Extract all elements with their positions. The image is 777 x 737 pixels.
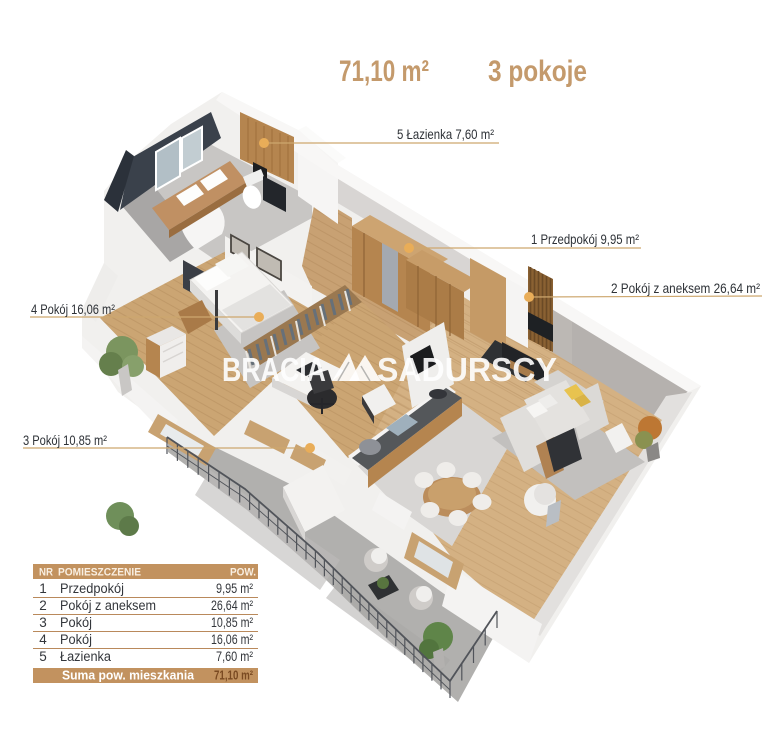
svg-text:5 Łazienka 7,60 m²: 5 Łazienka 7,60 m² bbox=[397, 126, 494, 142]
svg-text:Przedpokój: Przedpokój bbox=[60, 581, 124, 596]
svg-text:9,95 m²: 9,95 m² bbox=[216, 581, 253, 596]
svg-text:3: 3 bbox=[39, 615, 47, 630]
svg-text:2: 2 bbox=[39, 598, 47, 613]
svg-text:71,10 m²: 71,10 m² bbox=[214, 668, 253, 683]
svg-text:16,06 m²: 16,06 m² bbox=[211, 632, 253, 647]
svg-text:Pokój z aneksem: Pokój z aneksem bbox=[60, 598, 156, 613]
svg-text:Łazienka: Łazienka bbox=[60, 649, 111, 664]
svg-text:SADURSCY: SADURSCY bbox=[377, 351, 557, 388]
svg-text:3 Pokój 10,85 m²: 3 Pokój 10,85 m² bbox=[23, 432, 107, 448]
svg-text:5: 5 bbox=[39, 649, 47, 664]
svg-text:BRACIA: BRACIA bbox=[222, 351, 326, 388]
svg-text:POW.: POW. bbox=[230, 567, 256, 579]
svg-text:4 Pokój 16,06 m²: 4 Pokój 16,06 m² bbox=[31, 301, 115, 317]
svg-text:2 Pokój z aneksem 26,64 m²: 2 Pokój z aneksem 26,64 m² bbox=[611, 280, 760, 296]
svg-text:POMIESZCZENIE: POMIESZCZENIE bbox=[58, 567, 141, 579]
svg-text:Pokój: Pokój bbox=[60, 632, 92, 647]
svg-text:Pokój: Pokój bbox=[60, 615, 92, 630]
svg-text:1 Przedpokój 9,95 m²: 1 Przedpokój 9,95 m² bbox=[531, 231, 639, 247]
svg-text:1: 1 bbox=[39, 581, 47, 596]
svg-text:Suma pow. mieszkania: Suma pow. mieszkania bbox=[62, 668, 195, 683]
svg-text:NR: NR bbox=[39, 567, 53, 579]
svg-text:26,64 m²: 26,64 m² bbox=[211, 598, 253, 613]
svg-text:7,60 m²: 7,60 m² bbox=[216, 649, 253, 664]
svg-text:4: 4 bbox=[39, 632, 47, 647]
svg-text:3 pokoje: 3 pokoje bbox=[488, 55, 587, 88]
svg-text:71,10 m²: 71,10 m² bbox=[339, 55, 429, 88]
svg-text:10,85 m²: 10,85 m² bbox=[211, 615, 253, 630]
